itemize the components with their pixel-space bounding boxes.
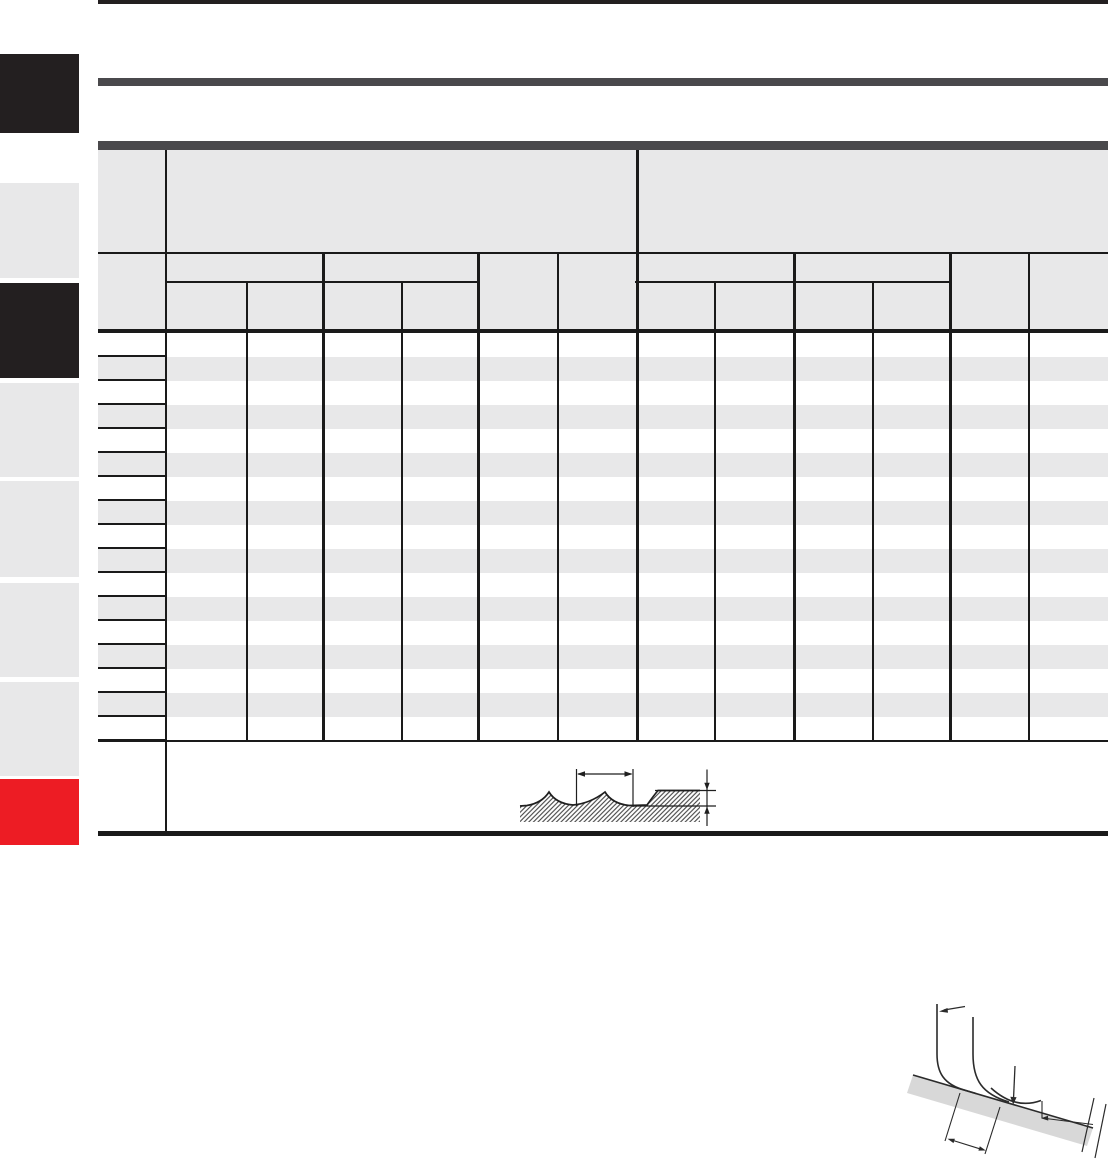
column-divider-line — [477, 253, 480, 741]
sidebar-tab-1 — [0, 54, 79, 133]
sidebar-tab-6 — [0, 583, 79, 677]
column-divider-line — [1028, 253, 1030, 741]
column-divider-line — [401, 282, 403, 741]
column-divider-line — [793, 253, 796, 741]
table-body-rows — [98, 333, 1108, 741]
section-divider-bar — [98, 78, 1108, 86]
nose-radius-curve-1 — [937, 1004, 976, 1094]
column-divider-line — [322, 253, 325, 741]
column-divider-line — [246, 282, 248, 741]
inclined-surface-band — [907, 1075, 1093, 1146]
header-bottom-border — [98, 329, 1108, 333]
sidebar-tab-2 — [0, 183, 79, 278]
catalog-page — [0, 0, 1108, 1159]
column-divider-line — [714, 282, 716, 741]
footer-top-border — [98, 740, 1108, 742]
sidebar-tab-3 — [0, 283, 79, 378]
sidebar-tab-8 — [0, 779, 79, 845]
column-divider-line — [872, 282, 874, 741]
insert-corner-geometry-diagram — [880, 958, 1108, 1159]
pointer-arrow — [939, 1007, 965, 1013]
sidebar-tab-7 — [0, 682, 79, 776]
subheader-divider-left — [165, 281, 478, 283]
left-column-row-lines — [98, 333, 166, 741]
header-row-divider — [98, 252, 1108, 254]
sidebar-tab-4 — [0, 383, 79, 477]
sidebar-tab-5 — [0, 481, 79, 577]
column-group-divider-line — [636, 150, 639, 741]
surface-roughness-diagram — [500, 745, 720, 835]
column-divider-line — [557, 253, 559, 741]
column-divider-line — [949, 253, 952, 741]
table-top-bar — [98, 141, 1108, 150]
down-arrow — [1010, 1066, 1016, 1105]
table-header — [98, 150, 1108, 330]
subheader-divider-right — [635, 281, 950, 283]
top-rule-bar — [98, 0, 1108, 4]
nose-radius-curve-2 — [973, 1017, 1009, 1102]
